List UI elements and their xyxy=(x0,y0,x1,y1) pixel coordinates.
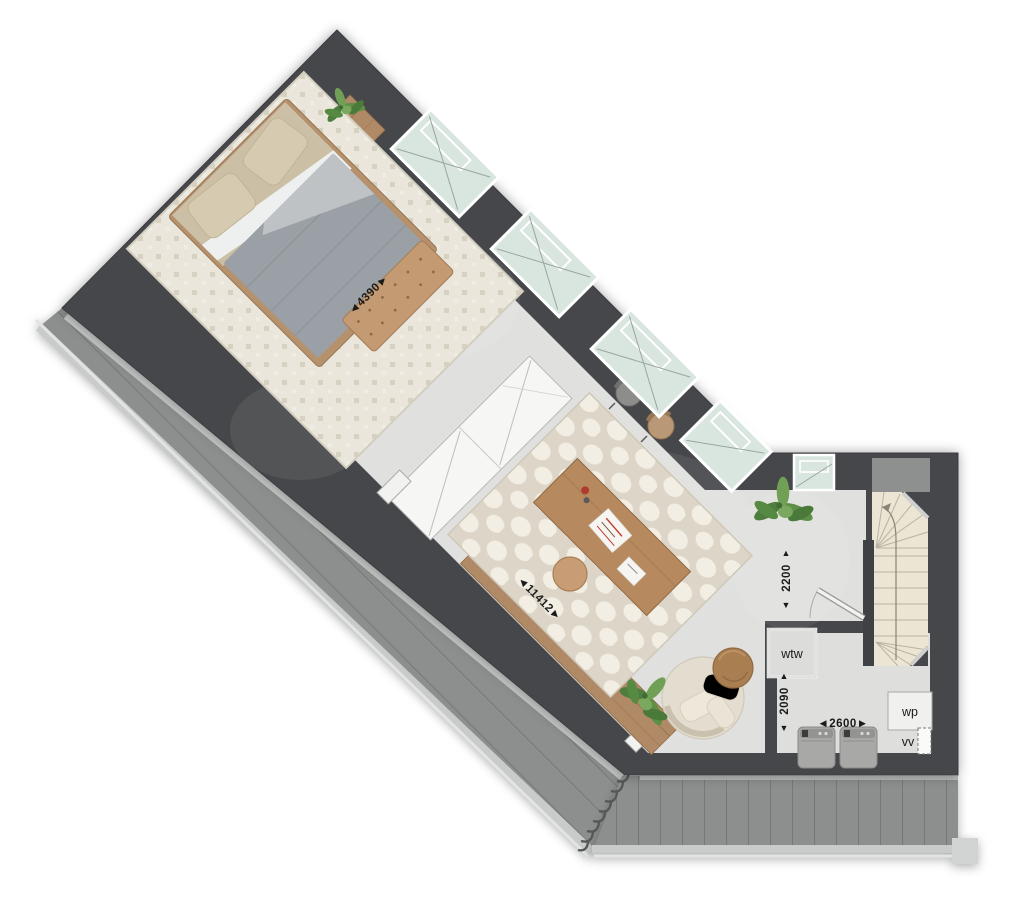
dim-hall-arrow-up: ▲ xyxy=(782,548,791,558)
roof-bottom xyxy=(592,776,978,864)
floorplan-canvas: ◄4390► ◄11412► ▲ 2200 ▼ ▲ 2090 ▼ ◄2600► … xyxy=(0,0,1024,905)
hall-window xyxy=(794,455,834,490)
dim-hall-arrow-down: ▼ xyxy=(782,600,791,610)
dim-utility-width: ◄2600► xyxy=(817,718,868,730)
round-side-table xyxy=(713,648,753,688)
vv-unit xyxy=(918,728,931,754)
label-wp: wp xyxy=(901,705,918,719)
dim-utility-depth: 2090 xyxy=(779,687,791,715)
label-vv: vv xyxy=(902,735,915,749)
dim-utility-arrow-up: ▲ xyxy=(780,671,789,681)
floorplan-drawing: ◄4390► ◄11412► ▲ 2200 ▼ ▲ 2090 ▼ ◄2600► … xyxy=(0,0,1024,905)
stair-parapet-wall xyxy=(872,458,930,492)
dryer-machine xyxy=(840,727,877,768)
roof-step xyxy=(952,838,978,864)
dim-hall-depth: 2200 xyxy=(781,564,793,592)
washing-machine xyxy=(798,727,835,768)
stool xyxy=(553,557,587,591)
label-wtw: wtw xyxy=(780,647,804,661)
stair-side-wall xyxy=(863,540,874,666)
dim-utility-arrow-down: ▼ xyxy=(780,723,789,733)
